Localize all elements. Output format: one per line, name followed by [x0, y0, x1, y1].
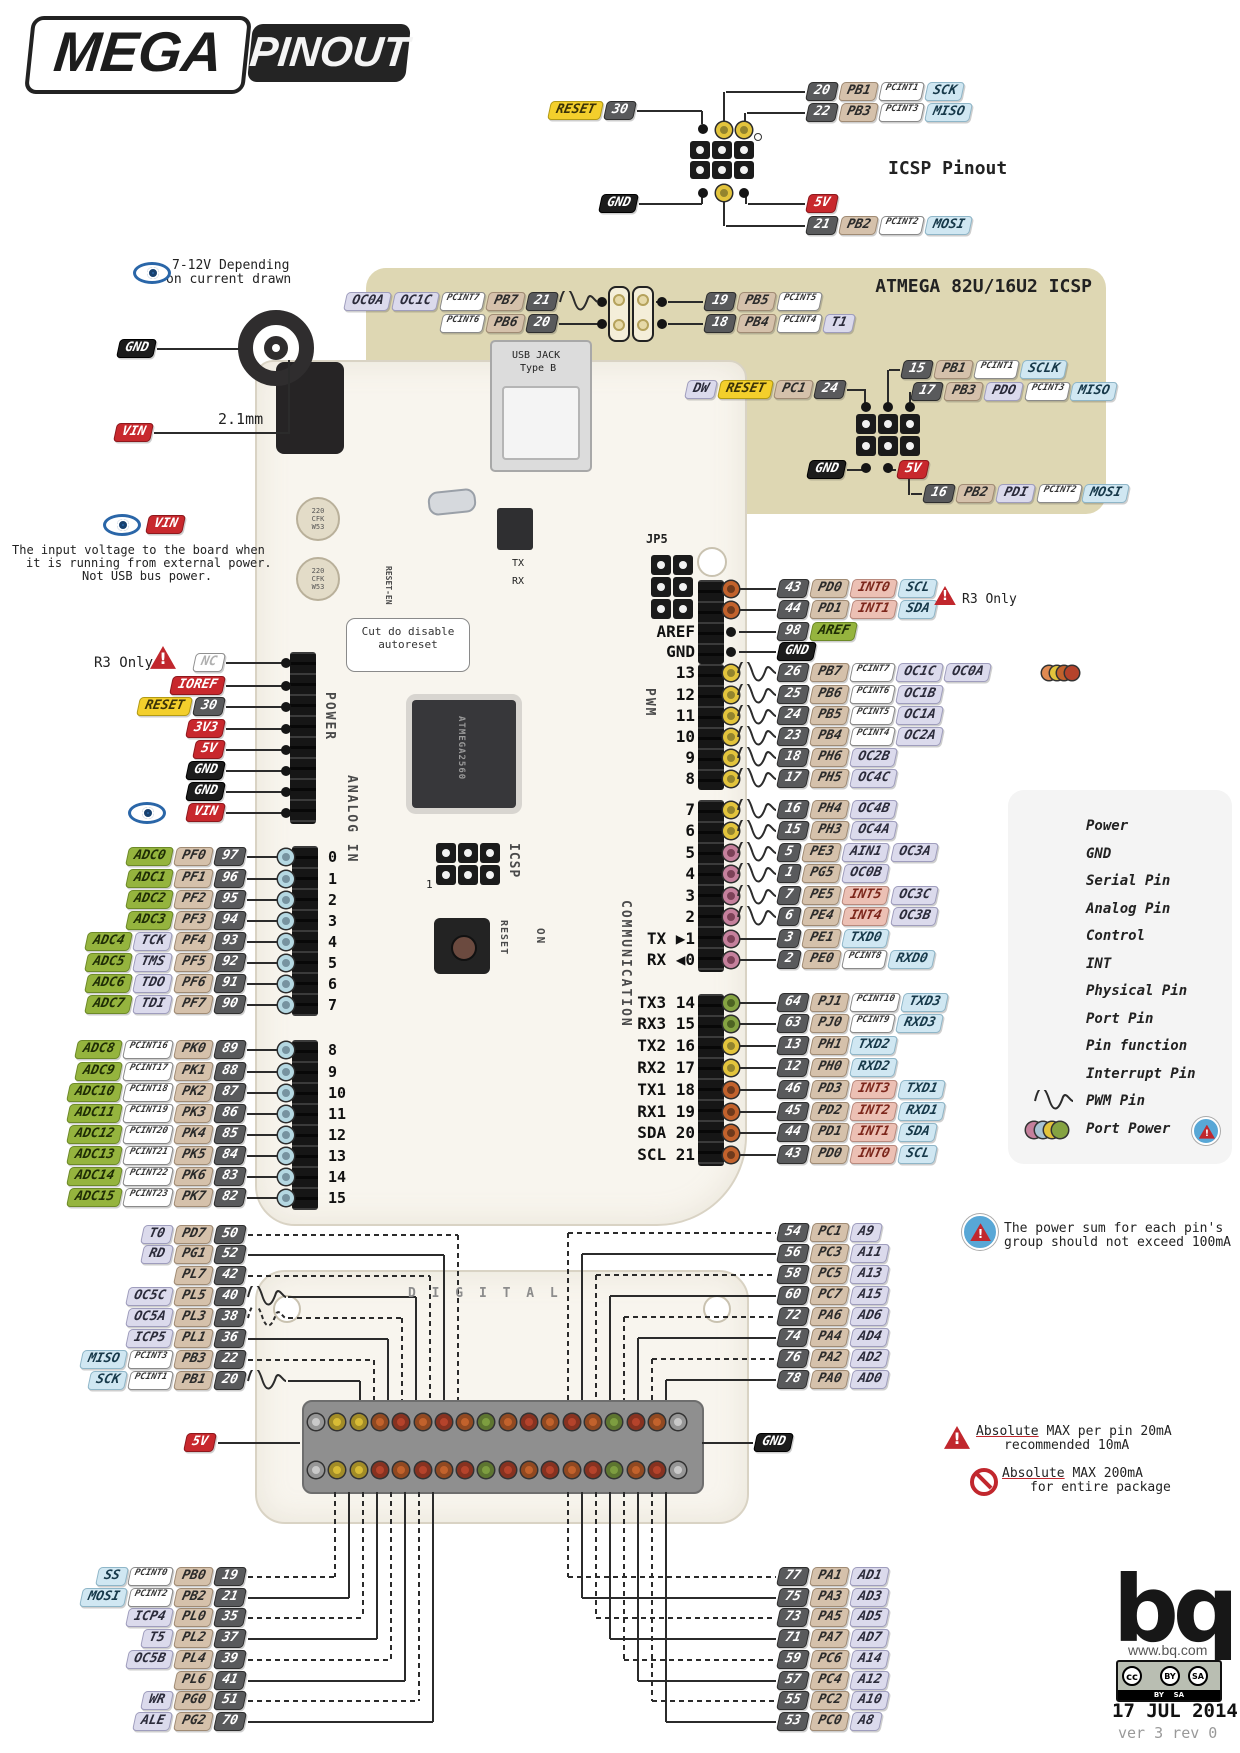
pin-badge-19: 19	[703, 292, 737, 311]
pin-badge-pb2: PB2	[955, 484, 997, 503]
connector-line	[248, 1576, 335, 1578]
legend-label: Control	[1086, 928, 1145, 944]
pin-badge-22: 22	[213, 1350, 247, 1369]
usb-controller-chip	[497, 508, 533, 550]
pin-row: ADC8PCINT16PK089	[76, 1040, 245, 1059]
connector-line	[226, 706, 282, 708]
header-cell-hole	[679, 605, 687, 613]
icsp-2x2-pin	[613, 319, 625, 331]
pin-badge-pb3: PB3	[838, 103, 880, 122]
pin-badge-21: 21	[213, 1588, 247, 1607]
pin-row: 60PC7A15	[778, 1286, 889, 1305]
pin-row: 78PA0AD0	[778, 1370, 889, 1389]
pin-dot	[698, 188, 708, 198]
prohibited-icon	[970, 1468, 998, 1496]
pin-badge-60: 60	[776, 1286, 810, 1305]
pin-badge-5v: 5V	[183, 1433, 217, 1452]
pin-badge-reset: RESET	[717, 380, 774, 399]
connector-line-v	[387, 1339, 389, 1400]
pin-row: 63PJ0PCINT9RXD3	[778, 1014, 942, 1033]
icsp-2x2-pin	[637, 294, 649, 306]
pin-row: VIN	[187, 803, 224, 822]
header-cell-hole	[884, 420, 892, 428]
connector-line	[747, 112, 805, 114]
pin-badge-7: 7	[776, 886, 802, 905]
pin-badge-pa5: PA5	[809, 1608, 851, 1627]
pin-badge-pc1: PC1	[809, 1223, 851, 1242]
pin-badge-pcint16: PCINT16	[122, 1040, 174, 1059]
pin-row: 16PH4OC4B	[778, 800, 896, 819]
pin-row: ADC2PF295	[127, 890, 245, 909]
pin-badge-72: 72	[776, 1307, 810, 1326]
pin-badge-pe5: PE5	[801, 886, 843, 905]
pin-badge-88: 88	[213, 1062, 247, 1081]
pin-badge-35: 35	[213, 1608, 247, 1627]
pin-header-strip	[290, 652, 316, 824]
pin-badge-pg5: PG5	[801, 864, 843, 883]
pin-row: 46PD3INT3TXD1	[778, 1080, 945, 1099]
warning-triangle: !	[970, 1223, 991, 1241]
pin-dot-orange	[723, 602, 739, 618]
eye-pupil	[142, 807, 154, 819]
pin-badge-pcint20: PCINT20	[122, 1125, 174, 1144]
cap-text: CFK	[298, 575, 338, 583]
pin-badge-ph3: PH3	[809, 821, 851, 840]
pin-badge-22: 22	[805, 103, 839, 122]
pwm-squiggle	[737, 726, 777, 748]
pin-badge-pcint4: PCINT4	[849, 727, 896, 746]
pin-dot	[281, 702, 291, 712]
pin-row: VIN	[115, 423, 152, 442]
connector-pin	[500, 1414, 516, 1430]
pin-badge-21: 21	[525, 292, 559, 311]
pin-row: WRPG051	[142, 1691, 245, 1710]
pin-row: 2PE0PCINT8RXD0	[778, 950, 934, 969]
pin-dot	[281, 808, 291, 818]
pin-badge-44: 44	[776, 600, 810, 619]
pin-badge-pb7: PB7	[485, 292, 527, 311]
connector-pin	[649, 1414, 665, 1430]
pin-badge-5v: 5V	[896, 460, 930, 479]
r3-only-left-label: R3 Only	[94, 655, 153, 671]
pin-badge-adc0: ADC0	[125, 847, 174, 866]
pin-badge-pb7: PB7	[809, 663, 851, 682]
legend-label: INT	[1086, 956, 1111, 972]
board-pin-number: 4	[328, 933, 337, 951]
pin-dot	[281, 681, 291, 691]
pin-row: MISOPCINT3PB322	[81, 1350, 245, 1369]
pin-badge-ph4: PH4	[809, 800, 851, 819]
board-pin-number: 9	[328, 1063, 337, 1081]
pin-badge-adc6: ADC6	[84, 974, 133, 993]
pin-badge-25: 25	[776, 685, 810, 704]
pin-badge-73: 73	[776, 1608, 810, 1627]
pin-row: 57PC4A12	[778, 1671, 889, 1690]
pin-row: 19PB5PCINT5	[705, 292, 821, 311]
connector-pin	[308, 1462, 324, 1478]
pin-row: 18PH6OC2B	[778, 748, 896, 767]
pin-badge-a13: A13	[849, 1265, 891, 1284]
pin-badge-tms: TMS	[132, 953, 174, 972]
pin-dot-blue	[278, 892, 294, 908]
pin-badge-oc3c: OC3C	[890, 886, 939, 905]
connector-line	[568, 1576, 776, 1578]
exclamation: !	[934, 589, 956, 604]
capacitor-1: 220CFKW53	[296, 497, 340, 541]
connector-line	[639, 203, 702, 205]
icsp-label: ICSP	[506, 843, 521, 878]
connector-line	[247, 878, 279, 880]
pin-badge-miso: MISO	[1069, 382, 1118, 401]
pin-badge-5: 5	[776, 843, 802, 862]
pin-badge-pb3: PB3	[943, 382, 985, 401]
usb-jack-label-2: Type B	[520, 363, 556, 374]
connector-line	[739, 1154, 776, 1156]
pin-badge-pc0: PC0	[809, 1712, 851, 1731]
pin-badge-adc11: ADC11	[66, 1104, 123, 1123]
pin-badge-pb3: PB3	[173, 1350, 215, 1369]
pin-badge-19: 19	[213, 1567, 247, 1586]
pin-badge-45: 45	[776, 1102, 810, 1121]
connector-line-v	[415, 1297, 417, 1400]
pin-badge-26: 26	[776, 663, 810, 682]
board-pin-label: 6	[685, 821, 695, 840]
connector-line	[247, 1155, 279, 1157]
connector-line	[638, 1337, 776, 1339]
port-power-icon	[1042, 666, 1079, 680]
connector-line	[248, 1597, 349, 1599]
pin-badge-pl1: PL1	[173, 1329, 215, 1348]
cap-text: CFK	[298, 515, 338, 523]
eye-icon	[103, 514, 141, 536]
pin-row: 13PH1TXD2	[778, 1036, 896, 1055]
connector-pin	[628, 1414, 644, 1430]
connector-line	[666, 1721, 776, 1723]
connector-line-v	[581, 1492, 583, 1598]
pin-badge-gnd: GND	[805, 460, 847, 479]
board-pin-label: AREF	[656, 622, 695, 641]
pin-badge-ad5: AD5	[849, 1608, 891, 1627]
pin-row: PCINT6PB620	[441, 314, 557, 333]
pin-row: SCKPCINT1PB120	[89, 1371, 245, 1390]
pin-badge-oc1c: OC1C	[391, 292, 440, 311]
board-pin-number: 14	[328, 1168, 346, 1186]
pin-dot	[726, 647, 736, 657]
pin-badge-21: 21	[805, 216, 839, 235]
header-cell-hole	[862, 420, 870, 428]
pin-badge-gnd: GND	[753, 1433, 795, 1452]
pin-badge-82: 82	[213, 1188, 247, 1207]
pin-badge-adc7: ADC7	[84, 995, 133, 1014]
pwm-squiggle	[247, 1307, 287, 1329]
pin-badge-oc4c: OC4C	[849, 769, 898, 788]
note-line: for entire package	[1030, 1480, 1171, 1495]
pin-row: NC	[194, 653, 224, 672]
pin-badge-pc1: PC1	[773, 380, 815, 399]
pin-badge-mosi: MOSI	[79, 1588, 128, 1607]
pin-badge-2: 2	[776, 950, 802, 969]
header-cell-hole	[486, 849, 494, 857]
pin-badge-15: 15	[776, 821, 810, 840]
pin-row: 26PB7PCINT7OC1COC0A	[778, 663, 990, 682]
board-pin-label: SDA 20	[637, 1123, 695, 1142]
underlined-word: Absolute	[976, 1424, 1039, 1439]
pwm-squiggle	[737, 747, 777, 769]
connector-line-v	[723, 92, 725, 122]
pin-badge-pf5: PF5	[173, 953, 215, 972]
pin-badge-oc3b: OC3B	[890, 907, 939, 926]
pin-row: 15PB1PCINT1SCLK	[902, 360, 1066, 379]
pin-badge-39: 39	[213, 1650, 247, 1669]
pin-badge-54: 54	[776, 1223, 810, 1242]
pin-badge-oc1c: OC1C	[895, 663, 944, 682]
connector-line	[610, 1638, 776, 1640]
pin-dot-green	[723, 1016, 739, 1032]
pin-badge-txd2: TXD2	[849, 1036, 898, 1055]
pin-row: OC5APL338	[127, 1308, 245, 1327]
pin-badge-44: 44	[776, 1123, 810, 1142]
pin-badge-adc3: ADC3	[125, 911, 174, 930]
pin-row: DWRESETPC124	[686, 380, 845, 399]
port-power-warning-icon: !	[1192, 1117, 1220, 1145]
connector-line	[248, 1700, 419, 1702]
connector-line	[248, 1638, 377, 1640]
pin-badge-pcint3: PCINT3	[1024, 382, 1071, 401]
pin-badge-sck: SCK	[87, 1371, 129, 1390]
connector-line	[739, 631, 776, 633]
pin-badge-46: 46	[776, 1080, 810, 1099]
connector-pin	[457, 1414, 473, 1430]
connector-line-v	[348, 1492, 350, 1598]
pin-badge-15: 15	[900, 360, 934, 379]
connector-line-v	[359, 1381, 361, 1400]
pin-badge-tck: TCK	[132, 932, 174, 951]
pin-row: 1PG5OC0B	[778, 864, 889, 883]
connector-line	[702, 1442, 753, 1444]
pin-badge-pd2: PD2	[809, 1102, 851, 1121]
pin-dot-orange	[723, 1082, 739, 1098]
pin-badge-txd1: TXD1	[897, 1080, 946, 1099]
header-cell-hole	[442, 871, 450, 879]
pin-row: 45PD2INT2RXD1	[778, 1102, 945, 1121]
usb-jack-plug	[502, 386, 580, 460]
pin-badge-pg1: PG1	[173, 1245, 215, 1264]
pin-row: 5PE3AIN1OC3A	[778, 843, 937, 862]
port-power-icon	[1026, 1122, 1068, 1138]
connector-line-v	[665, 1380, 667, 1400]
board-pin-label: RX3 15	[637, 1014, 695, 1033]
on-label: ON	[534, 928, 547, 945]
connector-line	[638, 1680, 776, 1682]
pin-badge-3: 3	[776, 929, 802, 948]
connector-line	[739, 1023, 776, 1025]
legend-label: Interrupt Pin	[1086, 1066, 1196, 1082]
pin-badge-96: 96	[213, 869, 247, 888]
connector-line	[247, 1134, 279, 1136]
connector-line	[624, 1659, 776, 1661]
header-cell-hole	[740, 146, 748, 154]
header-cell-hole	[718, 166, 726, 174]
connector-line	[247, 1004, 279, 1006]
connector-pin	[415, 1414, 431, 1430]
pin-badge-90: 90	[213, 995, 247, 1014]
connector-line	[226, 662, 282, 664]
exclamation: !	[1199, 1129, 1215, 1139]
pin-row: 73PA5AD5	[778, 1608, 889, 1627]
pin-badge-pc6: PC6	[809, 1650, 851, 1669]
pin-badge-86: 86	[213, 1104, 247, 1123]
cap-text: 220	[298, 567, 338, 575]
exclamation: !	[150, 649, 176, 668]
connector-line-v	[362, 1492, 364, 1618]
header-cell-hole	[906, 420, 914, 428]
pin-badge-int5: INT5	[841, 886, 890, 905]
connector-pin	[415, 1462, 431, 1478]
pin-row: ICP4PL035	[127, 1608, 245, 1627]
eye-icon	[133, 262, 171, 284]
pin-badge-56: 56	[776, 1244, 810, 1263]
pin-badge-rxd0: RXD0	[887, 950, 936, 969]
board-pin-number: 12	[328, 1126, 346, 1144]
connector-line	[288, 1317, 402, 1319]
pin-badge-71: 71	[776, 1629, 810, 1648]
connector-pin	[436, 1462, 452, 1478]
pin-badge-adc15: ADC15	[66, 1188, 123, 1207]
eye-pupil	[147, 267, 159, 279]
pin-badge-pj0: PJ0	[809, 1014, 851, 1033]
pin-dot-yellow	[716, 122, 732, 138]
pin-badge-ad7: AD7	[849, 1629, 891, 1648]
pin-badge-55: 55	[776, 1691, 810, 1710]
pin-badge-pb6: PB6	[485, 314, 527, 333]
pin-row: 72PA6AD6	[778, 1307, 889, 1326]
cap-text: 220	[298, 507, 338, 515]
pin-badge-icp5: ICP5	[125, 1329, 174, 1348]
pin-badge-37: 37	[213, 1629, 247, 1648]
capacitor-2: 220CFKW53	[296, 557, 340, 601]
jp5-label: JP5	[646, 532, 668, 546]
pin-badge-adc5: ADC5	[84, 953, 133, 972]
pin-row: 20PB1PCINT1SCK	[807, 82, 963, 101]
pin-row: VIN	[147, 515, 184, 534]
connector-line	[596, 1274, 776, 1276]
pin-badge-a9: A9	[849, 1223, 883, 1242]
pin-badge-pc5: PC5	[809, 1265, 851, 1284]
connector-line	[218, 1442, 300, 1444]
exclamation: !	[970, 1227, 991, 1241]
pin-dot-orange	[723, 1125, 739, 1141]
connector-pin	[308, 1414, 324, 1430]
board-pin-number: 10	[328, 1084, 346, 1102]
pin-row: 5V	[898, 460, 928, 479]
connector-line	[247, 1197, 279, 1199]
connector-line-v	[651, 1359, 653, 1400]
pin-badge-scl: SCL	[897, 1145, 939, 1164]
pin-dot-blue	[278, 849, 294, 865]
pin-dot-blue	[278, 1190, 294, 1206]
pin-badge-pcint3: PCINT3	[878, 103, 925, 122]
board-pin-label: 5	[685, 843, 695, 862]
board-pin-label: TX1 18	[637, 1080, 695, 1099]
pin-badge-91: 91	[213, 974, 247, 993]
connector-line	[248, 1721, 433, 1723]
board-pin-number: 15	[328, 1189, 346, 1207]
pin-badge-adc2: ADC2	[125, 890, 174, 909]
board-pin-number: 13	[328, 1147, 346, 1165]
board-pin-number: 5	[328, 954, 337, 972]
connector-line	[652, 1358, 776, 1360]
pin-dot	[698, 124, 708, 134]
connector-line-v	[701, 111, 703, 124]
supply-note-line-2: on current drawn	[166, 272, 291, 287]
reset-button-cap	[451, 935, 477, 961]
connector-line-v	[401, 1318, 403, 1400]
pin-badge-16: 16	[776, 800, 810, 819]
pin-badge-pl0: PL0	[173, 1608, 215, 1627]
board-pin-label: 13	[676, 663, 695, 682]
pin-badge-pe0: PE0	[801, 950, 843, 969]
pin-badge-98: 98	[776, 622, 810, 641]
pin-badge-84: 84	[213, 1146, 247, 1165]
pin-row: T0PD750	[142, 1225, 245, 1244]
pin-badge-ain1: AIN1	[841, 843, 890, 862]
pin-badge-23: 23	[776, 727, 810, 746]
pin-badge-pd0: PD0	[809, 579, 851, 598]
connector-line-v	[623, 1317, 625, 1400]
pin-badge-pa2: PA2	[809, 1349, 851, 1368]
connector-line	[748, 203, 805, 205]
board-pin-label: RX1 19	[637, 1102, 695, 1121]
pin-badge-ss: SS	[95, 1567, 129, 1586]
connector-line	[247, 1049, 279, 1051]
pin-dot-blue	[278, 1148, 294, 1164]
pin-badge-18: 18	[703, 314, 737, 333]
board-pin-label: TX ▶1	[647, 929, 695, 948]
board-pin-label: 11	[676, 706, 695, 725]
pin-row: ADC0PF097	[127, 847, 245, 866]
pin-badge-pl2: PL2	[173, 1629, 215, 1648]
connector-line	[739, 1002, 776, 1004]
pin-row: ICP5PL136	[127, 1329, 245, 1348]
pin-badge-pk5: PK5	[173, 1146, 215, 1165]
pwm-squiggle	[737, 863, 777, 885]
connector-line	[739, 938, 776, 940]
port-power-circle	[1065, 666, 1079, 680]
r3-warning-icon: !	[150, 646, 176, 669]
pin-badge-int0: INT0	[849, 579, 898, 598]
pin-row: GND	[600, 194, 637, 213]
pin-dot	[281, 787, 291, 797]
connector-line	[247, 983, 279, 985]
connector-pin	[670, 1414, 686, 1430]
pin-badge-87: 87	[213, 1083, 247, 1102]
pin-badge-43: 43	[776, 579, 810, 598]
pin-badge-pcint17: PCINT17	[122, 1062, 174, 1081]
connector-line-v	[637, 1492, 639, 1681]
pin-badge-pf3: PF3	[173, 911, 215, 930]
pin-badge-pk6: PK6	[173, 1167, 215, 1186]
board-pin-label: TX3 14	[637, 993, 695, 1012]
pin-row: 74PA4AD4	[778, 1328, 889, 1347]
pin-dot-blue	[278, 913, 294, 929]
pin-badge-pcint3: PCINT3	[127, 1350, 174, 1369]
atmega-panel-title: ATMEGA 82U/16U2 ICSP	[875, 276, 1092, 297]
pin-badge-vin: VIN	[184, 803, 226, 822]
cc-sa-icon: SA	[1188, 1666, 1208, 1686]
pin-badge-52: 52	[213, 1245, 247, 1264]
vin-note-line-3: Not USB bus power.	[82, 569, 212, 583]
pin-badge-pb4: PB4	[809, 727, 851, 746]
